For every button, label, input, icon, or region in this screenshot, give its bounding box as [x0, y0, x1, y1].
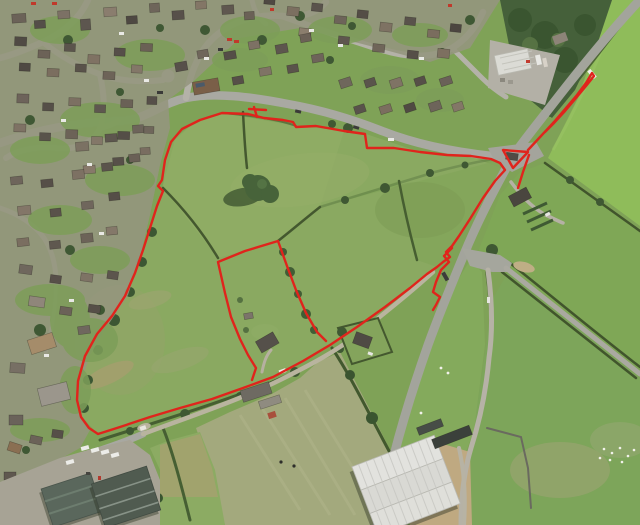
aerial-photo-canvas: [0, 0, 640, 525]
aerial-photograph: [0, 0, 640, 525]
